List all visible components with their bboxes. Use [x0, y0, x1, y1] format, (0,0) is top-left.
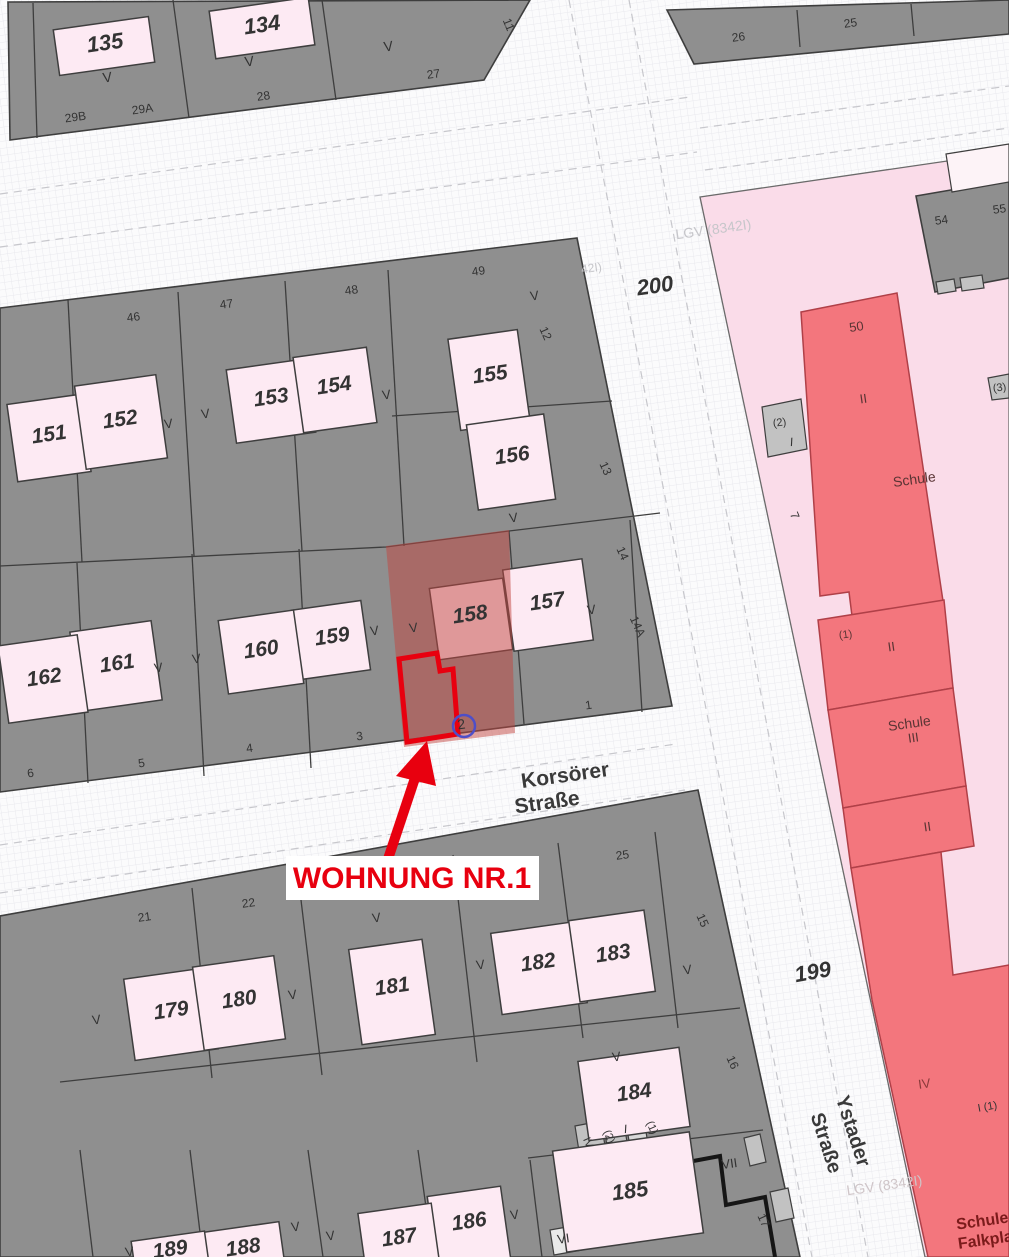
map-label-161-33: 161 [98, 650, 136, 678]
map-label-153-18: 153 [252, 384, 290, 412]
map-label-VI-87: VI [556, 1230, 570, 1247]
map-label-21-56: 21 [137, 909, 152, 925]
map-label-185-68: 185 [610, 1176, 651, 1206]
map-label-49-15: 49 [471, 263, 486, 279]
map-label-50-89: 50 [848, 318, 864, 335]
wohnung-annotation-text: WOHNUNG NR.1 [293, 862, 531, 895]
map-label-25-11: 25 [843, 15, 858, 31]
map-label-186-69: 186 [450, 1208, 488, 1236]
map-label-28-7: 28 [256, 88, 271, 104]
map-label-179-62: 179 [152, 997, 190, 1025]
map-label-VII-88: VII [720, 1155, 738, 1172]
map-label-42I-31: 42I) [580, 260, 602, 277]
map-label-26-10: 26 [731, 29, 746, 45]
map-label-134-1: 134 [242, 10, 282, 40]
map-label-184-67: 184 [615, 1079, 653, 1107]
map-label-29A-6: 29A [131, 101, 154, 118]
map-label-154-19: 154 [315, 372, 353, 400]
map-label-180-63: 180 [220, 986, 258, 1014]
map-label-46-12: 46 [126, 309, 141, 325]
map-label-162-32: 162 [25, 664, 63, 692]
map-label-151-16: 151 [30, 421, 68, 449]
map-label-156-21: 156 [493, 442, 531, 470]
map-label-29B-5: 29B [64, 109, 87, 126]
map-label-22-57: 22 [241, 895, 256, 911]
cadastral-map: 135134VVV29B29A2827112625464748491511521… [0, 0, 1009, 1257]
map-label-160-34: 160 [242, 636, 280, 664]
map-label-54-96: 54 [934, 212, 949, 228]
map-label-25-58: 25 [615, 847, 630, 863]
map-label-55-97: 55 [992, 201, 1007, 217]
map-label-189-72: 189 [151, 1236, 189, 1257]
map-label-3-95: (3) [992, 381, 1007, 395]
map-label-183-66: 183 [594, 940, 632, 968]
map-label-IV-103: IV [917, 1075, 932, 1092]
map-label-48-14: 48 [344, 282, 359, 298]
annotation-label: WOHNUNG NR.1 [286, 856, 539, 900]
map-label-135-0: 135 [85, 28, 126, 58]
map-label-III-101: III [907, 729, 920, 745]
map-label-2-92: (2) [772, 416, 787, 430]
map-label-200-29: 200 [634, 271, 676, 301]
map-label-47-13: 47 [219, 296, 234, 312]
map-label-1-98: (1) [838, 628, 853, 642]
map-label-159-35: 159 [313, 623, 351, 651]
map-label-158-36: 158 [451, 601, 489, 629]
map-label-152-17: 152 [101, 406, 139, 434]
map-svg: 135134VVV29B29A2827112625464748491511521… [0, 0, 1009, 1257]
map-label-182-65: 182 [519, 949, 557, 977]
map-label-188-71: 188 [224, 1234, 262, 1257]
map-label-181-64: 181 [373, 973, 411, 1001]
map-label-155-20: 155 [471, 361, 509, 389]
map-label-27-8: 27 [426, 66, 441, 82]
